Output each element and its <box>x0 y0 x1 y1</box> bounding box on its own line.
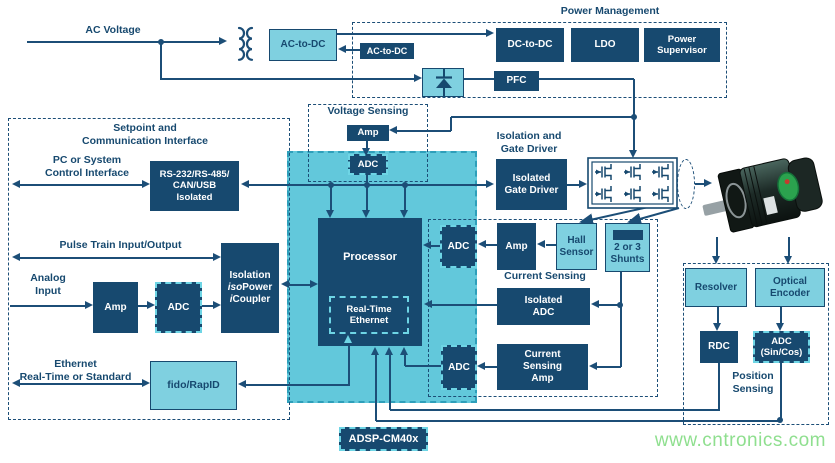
block-label: fido/RapID <box>167 379 220 391</box>
block-label: ADSP-CM40x <box>349 433 419 446</box>
wire <box>27 41 219 43</box>
analog-amp-block: Amp <box>93 282 138 333</box>
resolver-block: Resolver <box>685 268 747 307</box>
arrowhead <box>362 210 370 218</box>
isolated-gate-driver-block: Isolated Gate Driver <box>496 159 567 210</box>
isolation-icoupler-block: IsolationisoPoweriCoupler <box>221 243 279 333</box>
arrowhead <box>385 347 393 355</box>
wire <box>330 186 332 210</box>
arrowhead <box>142 180 150 188</box>
shunt-resistor-icon <box>613 230 643 240</box>
block-label: AC-to-DC <box>367 46 408 57</box>
block-label: Amp <box>104 302 126 314</box>
block-label: Hall Sensor <box>560 235 594 259</box>
arrowhead <box>371 347 379 355</box>
current-sensing-amp-block: Current Sensing Amp <box>497 344 588 390</box>
real-time-ethernet-block: Real-Time Ethernet <box>329 296 409 334</box>
wire <box>389 355 391 410</box>
wire <box>539 78 634 80</box>
arrowhead <box>414 74 422 82</box>
wire <box>404 355 406 366</box>
wire <box>160 42 162 79</box>
watermark: www.cntronics.com <box>608 430 826 452</box>
ac-to-dc-main-block: AC-to-DC <box>269 29 337 61</box>
wire <box>246 384 350 386</box>
dc-to-dc-block: DC-to-DC <box>496 28 564 62</box>
arrowhead <box>784 256 792 264</box>
block-label: ADC <box>168 302 190 314</box>
block-label: RDC <box>708 341 730 353</box>
block-label: Resolver <box>695 282 737 294</box>
wire <box>597 366 621 368</box>
diode-icon <box>423 68 463 97</box>
block-label: PFC <box>507 75 527 87</box>
arrowhead <box>712 256 720 264</box>
wire <box>717 307 719 323</box>
block-label: ADC <box>358 159 379 170</box>
wire <box>464 78 494 80</box>
ac-voltage-label: AC Voltage <box>78 24 148 37</box>
wire <box>599 304 620 306</box>
analog-adc-block: ADC <box>155 282 202 333</box>
block-label: 2 or 3 Shunts <box>611 242 645 266</box>
wire <box>346 49 360 51</box>
wire <box>567 184 579 186</box>
arrowhead <box>85 301 93 309</box>
optical-encoder-block: Optical Encoder <box>755 268 825 307</box>
arrowhead <box>477 362 485 370</box>
arrowhead <box>12 180 20 188</box>
block-label: AC-to-DC <box>281 39 326 51</box>
arrowhead <box>241 180 249 188</box>
setpoint-communication-label: Setpoint and Communication Interface <box>40 122 250 148</box>
block-label: ADC <box>448 362 470 374</box>
transformer-icon <box>226 26 264 62</box>
arrowhead <box>344 335 352 343</box>
wire <box>10 305 85 307</box>
arrowhead <box>537 240 545 248</box>
isolated-adc-block: Isolated ADC <box>497 288 590 325</box>
arrowhead <box>400 347 408 355</box>
wire <box>431 245 440 247</box>
block-label: Current Sensing Amp <box>523 349 562 384</box>
wire <box>20 184 142 186</box>
rectifier-block <box>422 68 464 97</box>
power-supervisor-block: Power Supervisor <box>644 28 720 62</box>
arrowhead <box>238 380 246 388</box>
wire <box>451 116 635 118</box>
arrowhead <box>424 300 432 308</box>
wire <box>337 33 486 35</box>
wire <box>485 366 497 368</box>
position-sensing-label: Position Sensing <box>722 370 784 396</box>
ldo-block: LDO <box>571 28 639 62</box>
voltage-sense-amp-block: Amp <box>347 125 389 141</box>
analog-input-label: Analog Input <box>16 272 80 298</box>
wire <box>366 186 368 210</box>
arrowhead <box>486 29 494 37</box>
fido-rapid-block: fido/RapID <box>150 361 237 410</box>
block-label: Isolated ADC <box>525 295 563 319</box>
wire <box>718 363 720 411</box>
block-label: ADC <box>448 241 470 253</box>
ac-to-dc-ctrl-block: AC-to-DC <box>360 43 414 59</box>
mosfet-bridge <box>587 157 678 209</box>
hall-adc-block: ADC <box>440 225 477 268</box>
arrowhead <box>478 240 486 248</box>
pulse-train-label: Pulse Train Input/Output <box>28 239 213 252</box>
wire <box>160 78 414 80</box>
wire <box>405 365 441 367</box>
wire <box>432 304 497 306</box>
ethernet-label: Ethernet Real-Time or Standard <box>8 358 143 384</box>
arrowhead <box>589 362 597 370</box>
arrowhead <box>310 280 318 288</box>
motor-control-block-diagram: AC-to-DC AC-to-DC DC-to-DC LDO Power Sup… <box>0 0 835 463</box>
arrowhead <box>142 379 150 387</box>
current-amp-block: Amp <box>497 223 536 270</box>
wire <box>780 307 782 323</box>
wire <box>289 284 310 286</box>
current-adc-block: ADC <box>441 345 477 390</box>
wire <box>397 130 451 132</box>
wire <box>404 186 406 210</box>
block-label: Optical Encoder <box>770 276 810 300</box>
voltage-sense-adc-block: ADC <box>348 154 388 175</box>
motor-photo <box>700 152 835 240</box>
wire <box>546 244 556 246</box>
arrowhead <box>486 180 494 188</box>
hall-sensor-block: Hall Sensor <box>556 223 597 270</box>
arrowhead <box>591 300 599 308</box>
block-label: RS-232/RS-485/ CAN/USB Isolated <box>160 169 230 203</box>
wire <box>375 355 377 421</box>
arrowhead <box>338 45 346 53</box>
wire <box>348 342 350 385</box>
arrowhead <box>12 253 20 261</box>
isolation-gate-driver-label: Isolation and Gate Driver <box>484 130 574 156</box>
block-label: Processor <box>343 251 397 264</box>
pc-control-label: PC or System Control Interface <box>28 154 146 180</box>
wire <box>620 272 622 367</box>
pfc-block: PFC <box>494 71 539 91</box>
wire <box>390 409 720 411</box>
block-label: Amp <box>505 241 527 253</box>
arrowhead <box>281 280 289 288</box>
voltage-sensing-label: Voltage Sensing <box>313 105 423 118</box>
arrowhead <box>213 301 221 309</box>
block-label: Isolated Gate Driver <box>505 173 559 197</box>
junction-dot <box>777 417 783 423</box>
wire <box>450 117 452 131</box>
arrowhead <box>776 323 784 331</box>
adc-sincos-block: ADC (Sin/Cos) <box>753 331 810 363</box>
block-label: Real-Time Ethernet <box>346 304 391 326</box>
block-label: Amp <box>357 127 378 138</box>
block-label: IsolationisoPoweriCoupler <box>228 270 272 305</box>
arrowhead <box>400 210 408 218</box>
arrowhead <box>147 301 155 309</box>
wire <box>486 244 497 246</box>
cable-bundle-ellipse <box>677 159 695 209</box>
wire <box>138 305 147 307</box>
rs232-rs485-can-usb-block: RS-232/RS-485/ CAN/USB Isolated <box>150 161 239 211</box>
current-sensing-label: Current Sensing <box>495 270 595 283</box>
power-management-label: Power Management <box>500 5 720 18</box>
wire <box>376 420 782 422</box>
arrowhead <box>713 323 721 331</box>
block-label: LDO <box>594 39 615 51</box>
arrowhead <box>579 180 587 188</box>
arrowhead <box>389 126 397 134</box>
arrowhead <box>423 241 431 249</box>
rdc-block: RDC <box>700 331 738 363</box>
adsp-cm40x-block: ADSP-CM40x <box>339 427 428 451</box>
arrowhead <box>213 253 221 261</box>
shunts-block: 2 or 3 Shunts <box>605 223 650 272</box>
arrowhead <box>326 210 334 218</box>
block-label: ADC (Sin/Cos) <box>761 336 803 358</box>
block-label: DC-to-DC <box>508 39 553 51</box>
wire <box>202 305 213 307</box>
wire <box>20 257 213 259</box>
block-label: Power Supervisor <box>657 34 707 56</box>
